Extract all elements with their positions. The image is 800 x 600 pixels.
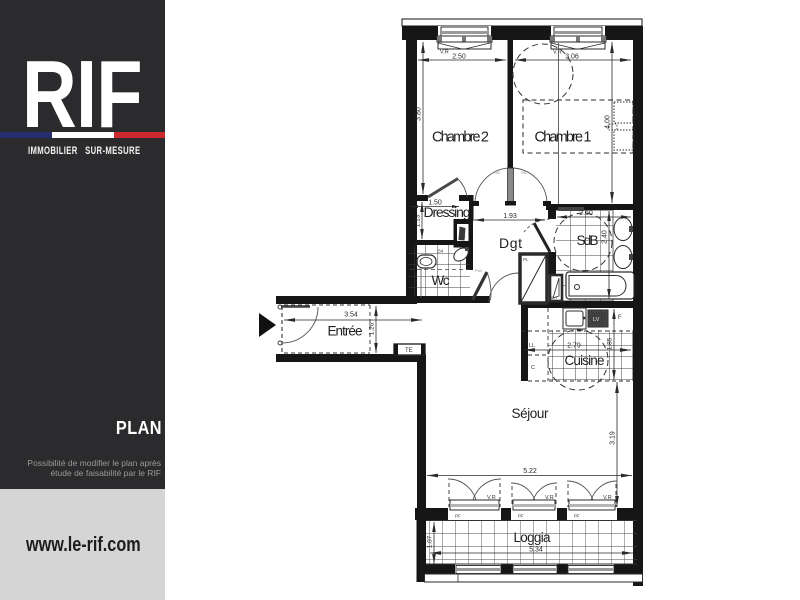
svg-text:G.T: G.T [551, 295, 558, 300]
svg-text:Cuisine: Cuisine [565, 353, 605, 368]
svg-text:1.93: 1.93 [503, 213, 517, 220]
svg-text:PF: PF [574, 514, 580, 519]
svg-text:V.R: V.R [553, 50, 562, 56]
svg-text:3.80: 3.80 [416, 107, 423, 121]
svg-text:C: C [531, 365, 535, 371]
svg-text:V.R: V.R [545, 495, 554, 501]
svg-text:F: F [618, 315, 622, 321]
svg-text:5.22: 5.22 [523, 468, 537, 475]
svg-text:Entrée: Entrée [328, 324, 363, 339]
svg-text:4.00: 4.00 [605, 115, 612, 129]
svg-text:PF: PF [518, 514, 524, 519]
svg-text:G.T: G.T [459, 235, 466, 240]
svg-text:.54: .54 [437, 249, 444, 254]
svg-text:Loggia: Loggia [514, 530, 551, 545]
svg-text:V.R: V.R [440, 50, 449, 56]
svg-text:P.60: P.60 [475, 269, 482, 273]
svg-text:V.R: V.R [487, 495, 496, 501]
svg-text:2.50: 2.50 [452, 54, 466, 61]
svg-text:Wc: Wc [432, 273, 450, 288]
svg-text:1.07: 1.07 [427, 535, 434, 548]
svg-text:Séjour: Séjour [512, 406, 550, 421]
svg-text:Dressing: Dressing [424, 204, 471, 220]
svg-text:1.13: 1.13 [415, 214, 422, 227]
svg-text:3.19: 3.19 [610, 431, 617, 445]
svg-text:V.R: V.R [603, 495, 612, 501]
svg-text:SdB: SdB [577, 233, 599, 248]
svg-text:TE: TE [405, 348, 413, 354]
svg-text:PF: PF [455, 514, 461, 519]
svg-text:LV: LV [593, 317, 600, 323]
svg-text:1.85: 1.85 [607, 337, 614, 350]
svg-text:2.60: 2.60 [579, 210, 593, 217]
svg-text:P80: P80 [494, 171, 501, 175]
svg-text:3.06: 3.06 [565, 54, 579, 61]
svg-text:2.40: 2.40 [602, 230, 609, 244]
svg-text:Chambre 2: Chambre 2 [432, 130, 489, 146]
svg-text:1.26: 1.26 [369, 322, 376, 335]
svg-text:5.34: 5.34 [529, 547, 543, 554]
svg-text:LL: LL [529, 343, 535, 349]
svg-text:Chambre 1: Chambre 1 [535, 130, 592, 146]
svg-text:Dgt: Dgt [499, 235, 522, 251]
svg-text:P80: P80 [521, 171, 528, 175]
svg-text:3.54: 3.54 [344, 312, 358, 319]
svg-text:2.79: 2.79 [567, 343, 581, 350]
svg-text:PL: PL [523, 257, 529, 262]
